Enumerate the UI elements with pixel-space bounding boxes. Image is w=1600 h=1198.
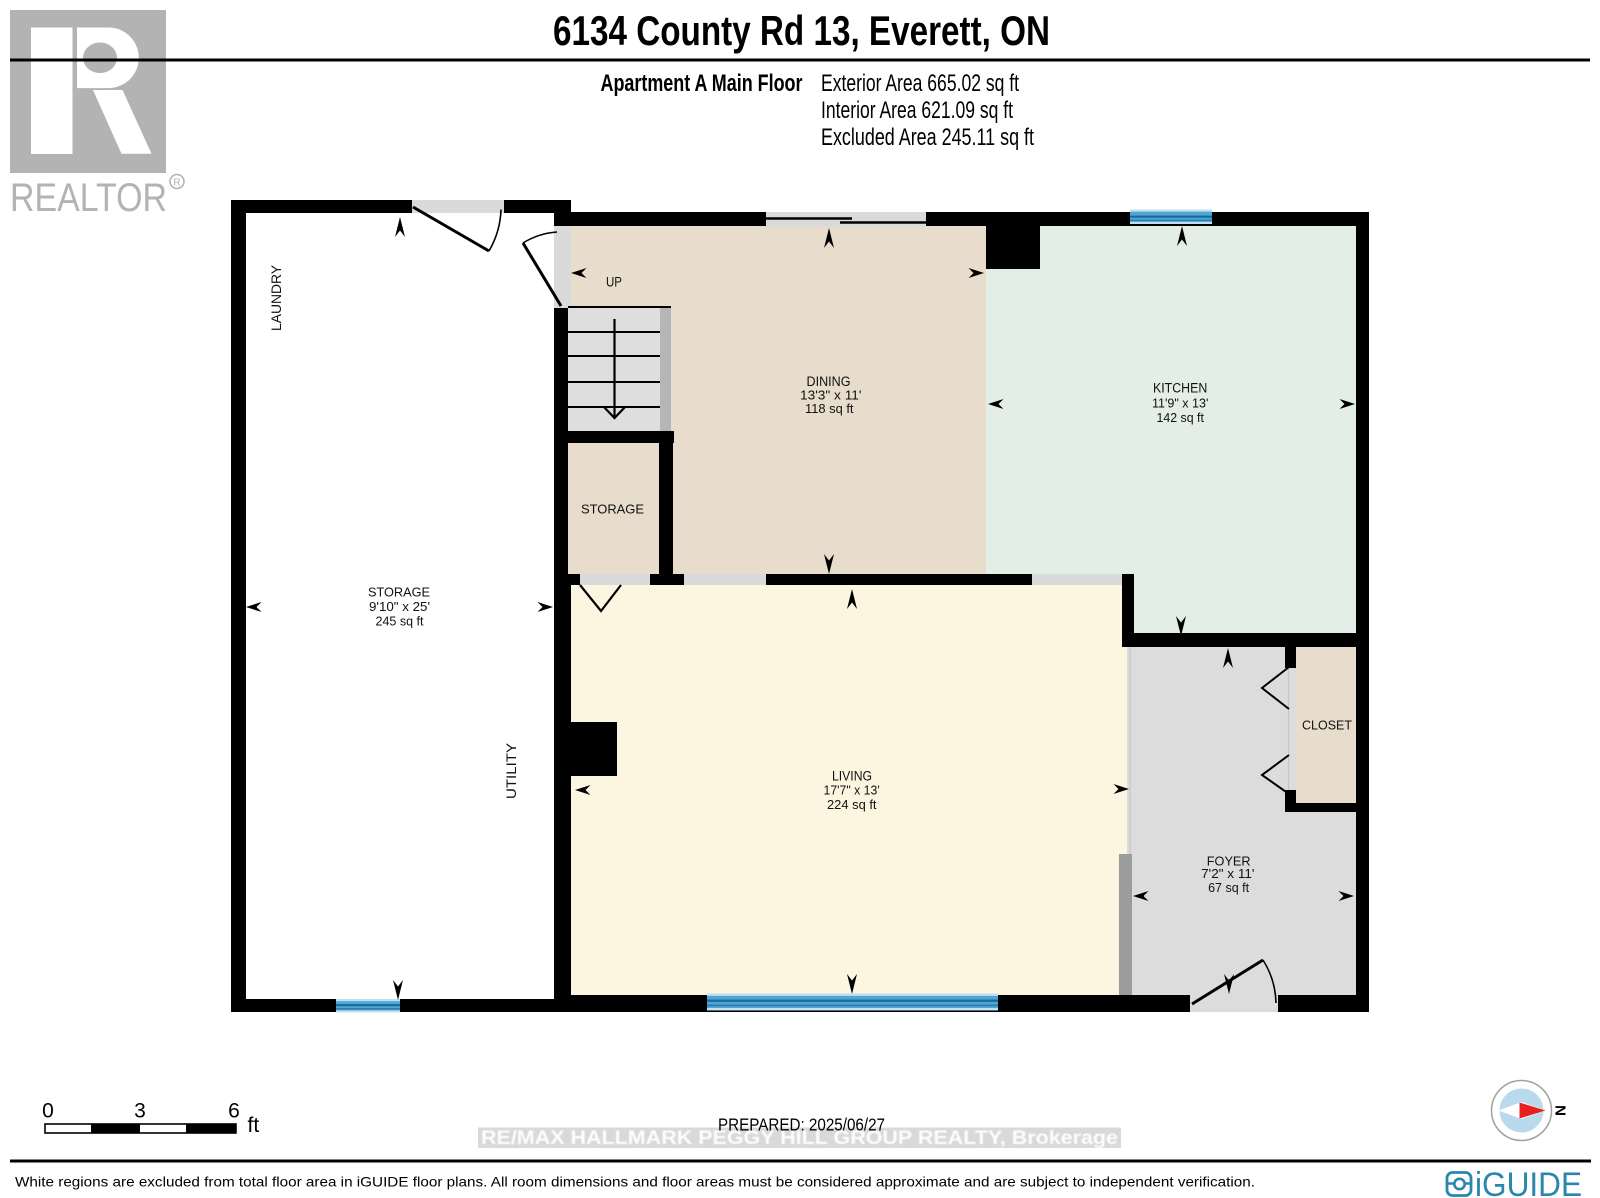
svg-text:7'2" x 11': 7'2" x 11' [1201, 866, 1254, 881]
svg-text:Apartment A Main Floor: Apartment A Main Floor [601, 70, 803, 97]
svg-text:ft: ft [248, 1114, 260, 1137]
svg-text:118 sq ft: 118 sq ft [805, 401, 854, 416]
svg-text:11'9" x 13': 11'9" x 13' [1152, 395, 1208, 410]
svg-text:STORAGE: STORAGE [581, 502, 644, 517]
svg-text:White regions are excluded fro: White regions are excluded from total fl… [15, 1174, 1255, 1190]
svg-text:3: 3 [134, 1100, 146, 1123]
svg-text:17'7" x 13': 17'7" x 13' [824, 783, 880, 798]
svg-text:Excluded Area 245.11 sq ft: Excluded Area 245.11 sq ft [821, 124, 1034, 151]
svg-text:LAUNDRY: LAUNDRY [269, 265, 284, 331]
svg-text:9'10" x 25': 9'10" x 25' [369, 599, 430, 614]
svg-text:67 sq ft: 67 sq ft [1208, 880, 1249, 895]
svg-text:LIVING: LIVING [832, 768, 872, 783]
svg-text:R: R [173, 178, 180, 189]
svg-text:UP: UP [606, 275, 622, 290]
svg-text:REALTOR: REALTOR [10, 176, 167, 220]
svg-text:6: 6 [228, 1100, 240, 1123]
svg-text:PREPARED: 2025/06/27: PREPARED: 2025/06/27 [718, 1115, 885, 1135]
svg-text:0: 0 [42, 1100, 54, 1123]
svg-text:Interior Area 621.09 sq ft: Interior Area 621.09 sq ft [821, 97, 1013, 124]
svg-text:iGUIDE: iGUIDE [1475, 1166, 1582, 1198]
svg-text:245 sq ft: 245 sq ft [376, 614, 424, 629]
svg-text:CLOSET: CLOSET [1302, 718, 1352, 733]
svg-text:UTILITY: UTILITY [504, 743, 519, 799]
svg-text:6134 County Rd 13, Everett, ON: 6134 County Rd 13, Everett, ON [553, 7, 1050, 54]
svg-text:STORAGE: STORAGE [368, 585, 430, 600]
svg-text:224 sq ft: 224 sq ft [827, 797, 877, 812]
svg-text:142 sq ft: 142 sq ft [1157, 410, 1205, 425]
svg-text:KITCHEN: KITCHEN [1153, 380, 1207, 395]
svg-text:N: N [1552, 1105, 1569, 1116]
svg-text:Exterior Area 665.02 sq ft: Exterior Area 665.02 sq ft [821, 70, 1019, 97]
